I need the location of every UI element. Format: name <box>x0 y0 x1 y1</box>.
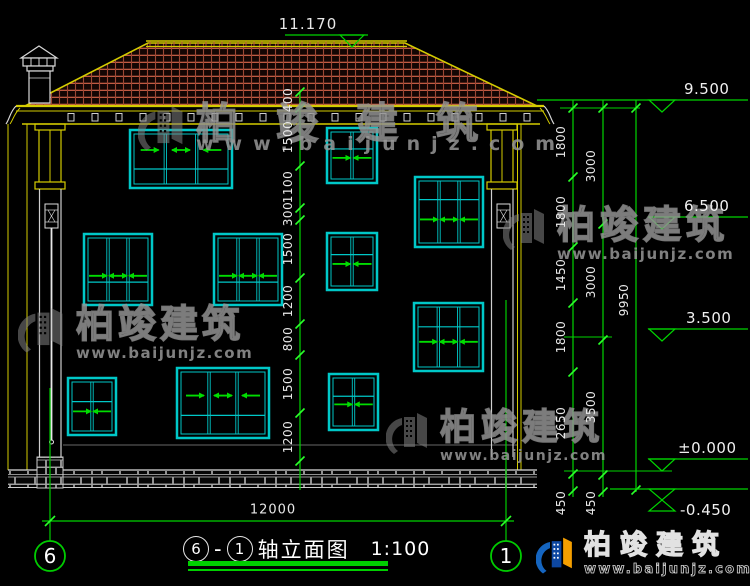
dimension-label: 1800 <box>554 196 568 229</box>
window <box>327 233 377 290</box>
axis-bubble-left-number: 6 <box>44 544 57 568</box>
window <box>415 177 483 247</box>
level-triangle-6500 <box>649 217 675 229</box>
title-axis-start: 6 <box>183 536 209 562</box>
window <box>130 130 232 188</box>
level-triangle-0000 <box>649 459 675 471</box>
total-height-text: 9950 <box>617 284 631 317</box>
dimension-label: 450 <box>554 491 568 515</box>
level-text-3500: 3.500 <box>686 309 731 327</box>
axis-bubble-right-number: 1 <box>500 544 513 568</box>
dimension-label: 3000 <box>584 266 598 299</box>
ridge-level-text: 11.170 <box>279 15 338 33</box>
dimension-label: 1800 <box>554 321 568 354</box>
dimension-label: 1200 <box>281 285 295 318</box>
window <box>177 368 269 438</box>
title-underline-thick <box>188 561 388 566</box>
dimension-label: 1100 <box>281 171 295 204</box>
dimension-label: 1800 <box>554 126 568 159</box>
bottom-width-text: 12000 <box>250 503 296 518</box>
eave-band <box>6 106 554 124</box>
title-name: 轴立面图 <box>258 534 350 564</box>
dimension-label: 400 <box>281 88 295 112</box>
brand-logo-url: www.baijunjz.com <box>584 563 750 576</box>
dimension-label: 300 <box>281 202 295 226</box>
dimension-label: 3000 <box>584 150 598 183</box>
dimension-label: 450 <box>584 491 598 515</box>
window <box>84 234 152 305</box>
right-column <box>487 124 517 457</box>
brand-logo: 柏竣建筑 www.baijunjz.com <box>536 532 750 580</box>
dimension-label: 1500 <box>281 368 295 401</box>
dimension-label: 1500 <box>281 121 295 154</box>
windows <box>68 128 483 438</box>
window <box>214 234 282 305</box>
dentil-row <box>68 114 530 122</box>
dimension-label: 1500 <box>281 233 295 266</box>
drawing-title: 6 - 1 轴立面图 1:100 <box>183 534 430 564</box>
dimension-label: 1450 <box>554 259 568 292</box>
level-text-9500: 9.500 <box>684 80 729 98</box>
dimension-label: 2650 <box>554 407 568 440</box>
level-text-0000: ±0.000 <box>678 439 737 457</box>
elevation-drawing <box>0 0 750 586</box>
dimension-label: 1200 <box>281 421 295 454</box>
level-text-6500: 6.500 <box>684 197 729 215</box>
window <box>329 374 378 430</box>
title-sep: - <box>214 537 222 561</box>
level-triangle-neg450-top <box>649 489 675 500</box>
level-text-neg450: -0.450 <box>680 501 731 519</box>
brand-logo-icon <box>536 532 578 580</box>
cad-elevation-screenshot: 4001500110030015001200800150012001800180… <box>0 0 750 586</box>
window <box>414 303 483 371</box>
window <box>68 378 116 435</box>
window <box>327 128 377 183</box>
brand-logo-text: 柏竣建筑 <box>584 532 750 559</box>
dimension-label: 3500 <box>584 391 598 424</box>
level-triangle-9500 <box>649 100 675 112</box>
level-triangle-3500 <box>649 329 675 341</box>
title-axis-end: 1 <box>227 536 253 562</box>
level-triangle-neg450-bottom <box>649 500 675 511</box>
title-scale: 1:100 <box>371 538 431 560</box>
dimension-label: 800 <box>281 327 295 351</box>
title-underline-thin <box>188 569 388 571</box>
